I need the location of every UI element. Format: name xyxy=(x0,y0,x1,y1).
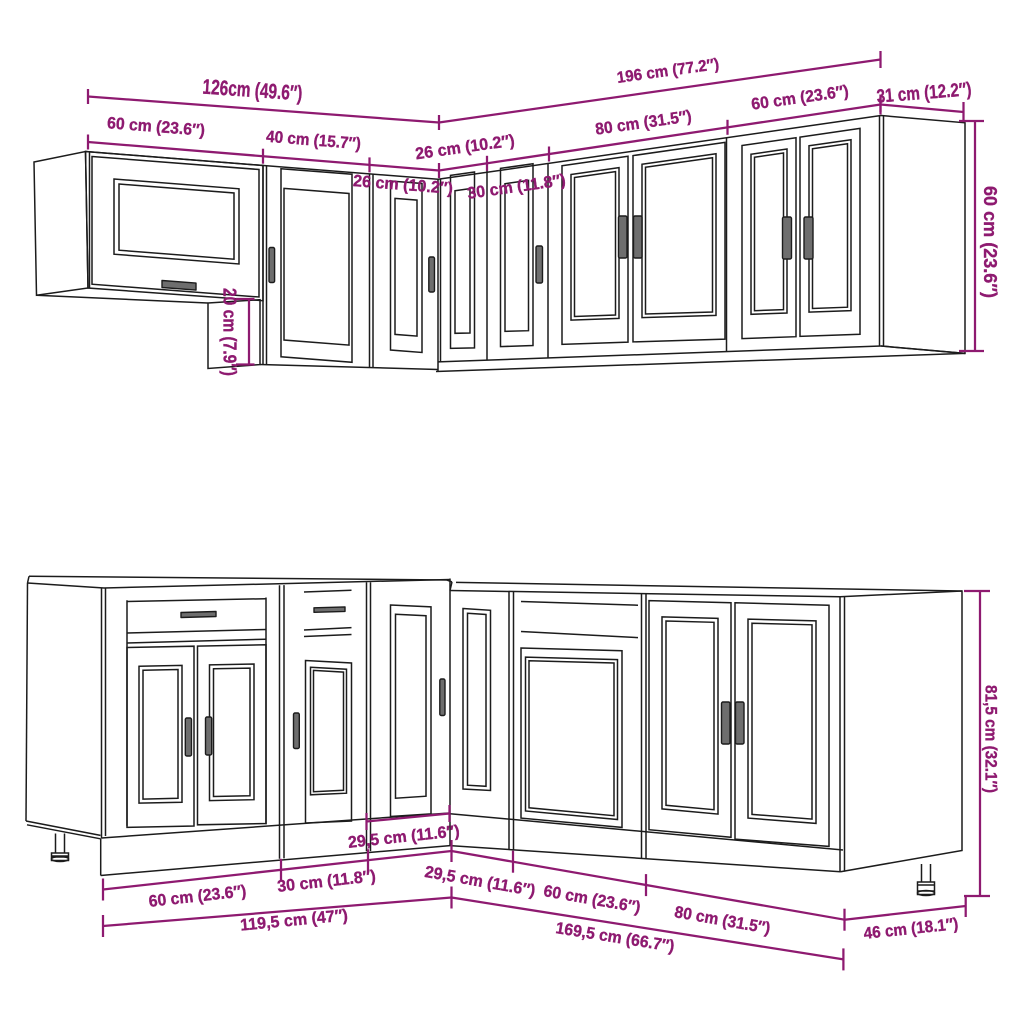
svg-text:81,5 cm (32.1″): 81,5 cm (32.1″) xyxy=(982,685,1001,793)
svg-text:60 cm (23.6″): 60 cm (23.6″) xyxy=(980,186,1000,298)
svg-text:20 cm (7.9″): 20 cm (7.9″) xyxy=(220,288,240,376)
